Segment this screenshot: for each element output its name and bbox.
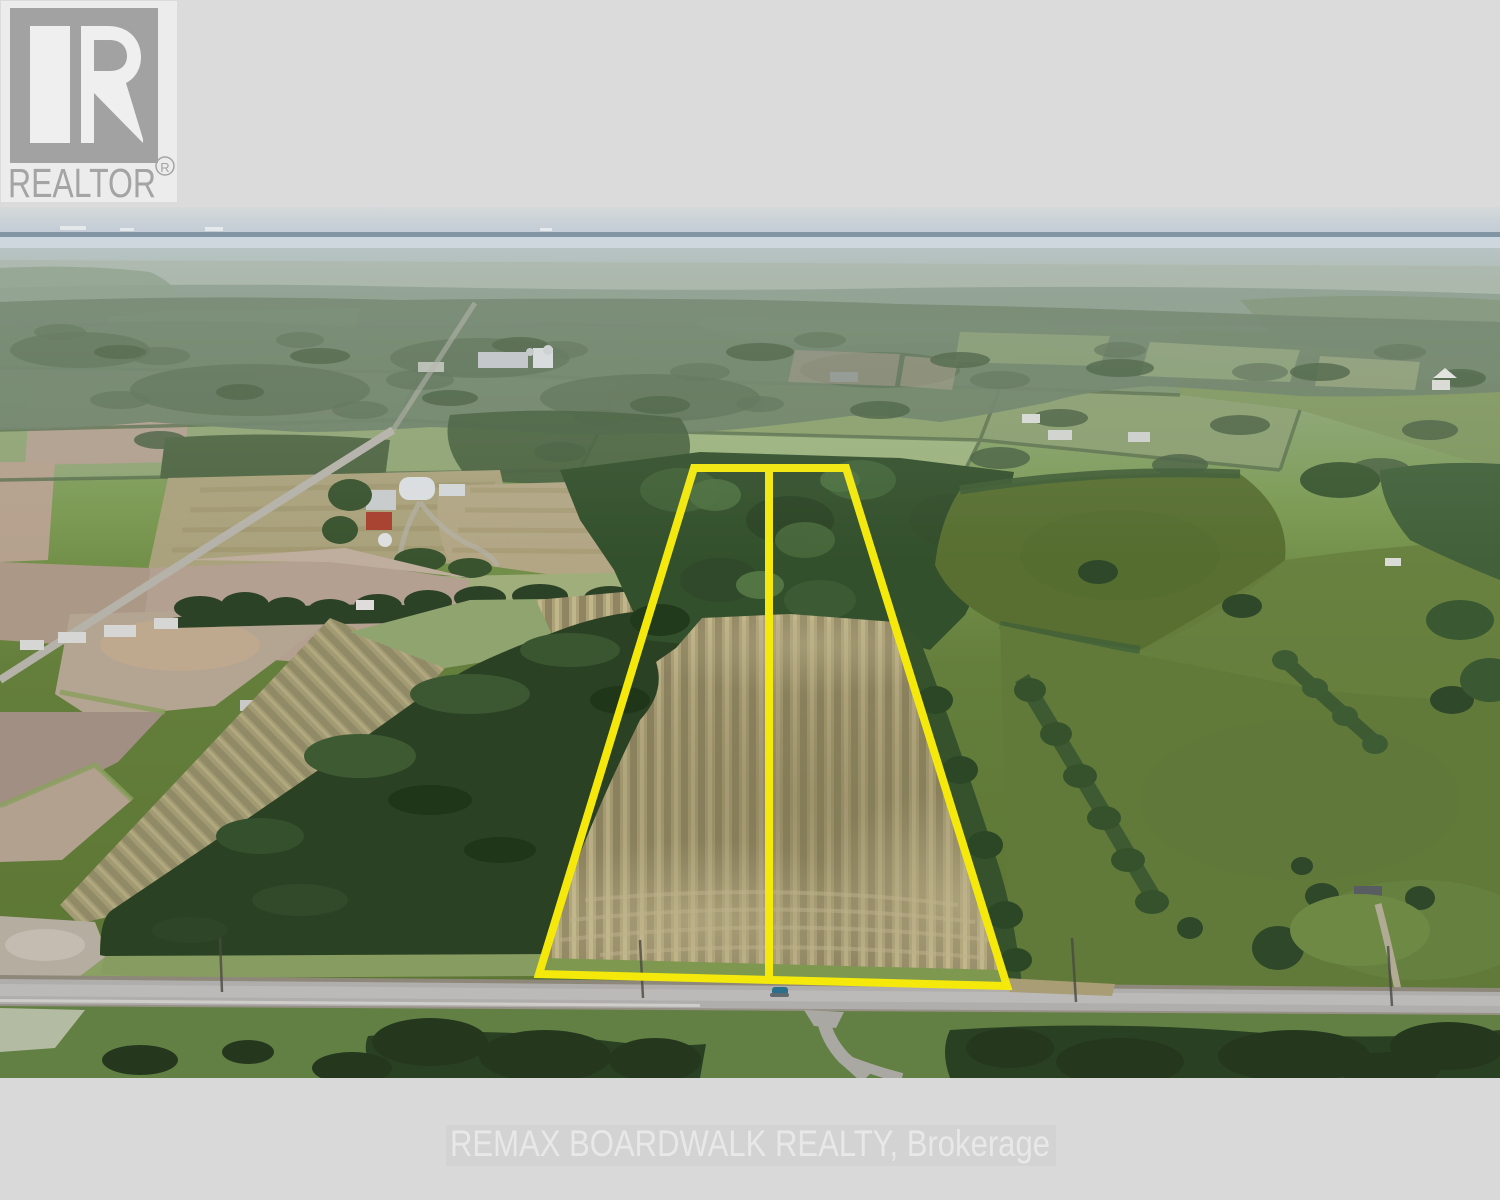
svg-text:REMAX BOARDWALK REALTY, Broker: REMAX BOARDWALK REALTY, Brokerage: [450, 1123, 1050, 1164]
svg-text:R: R: [160, 160, 169, 175]
svg-text:REALTOR: REALTOR: [8, 160, 156, 206]
